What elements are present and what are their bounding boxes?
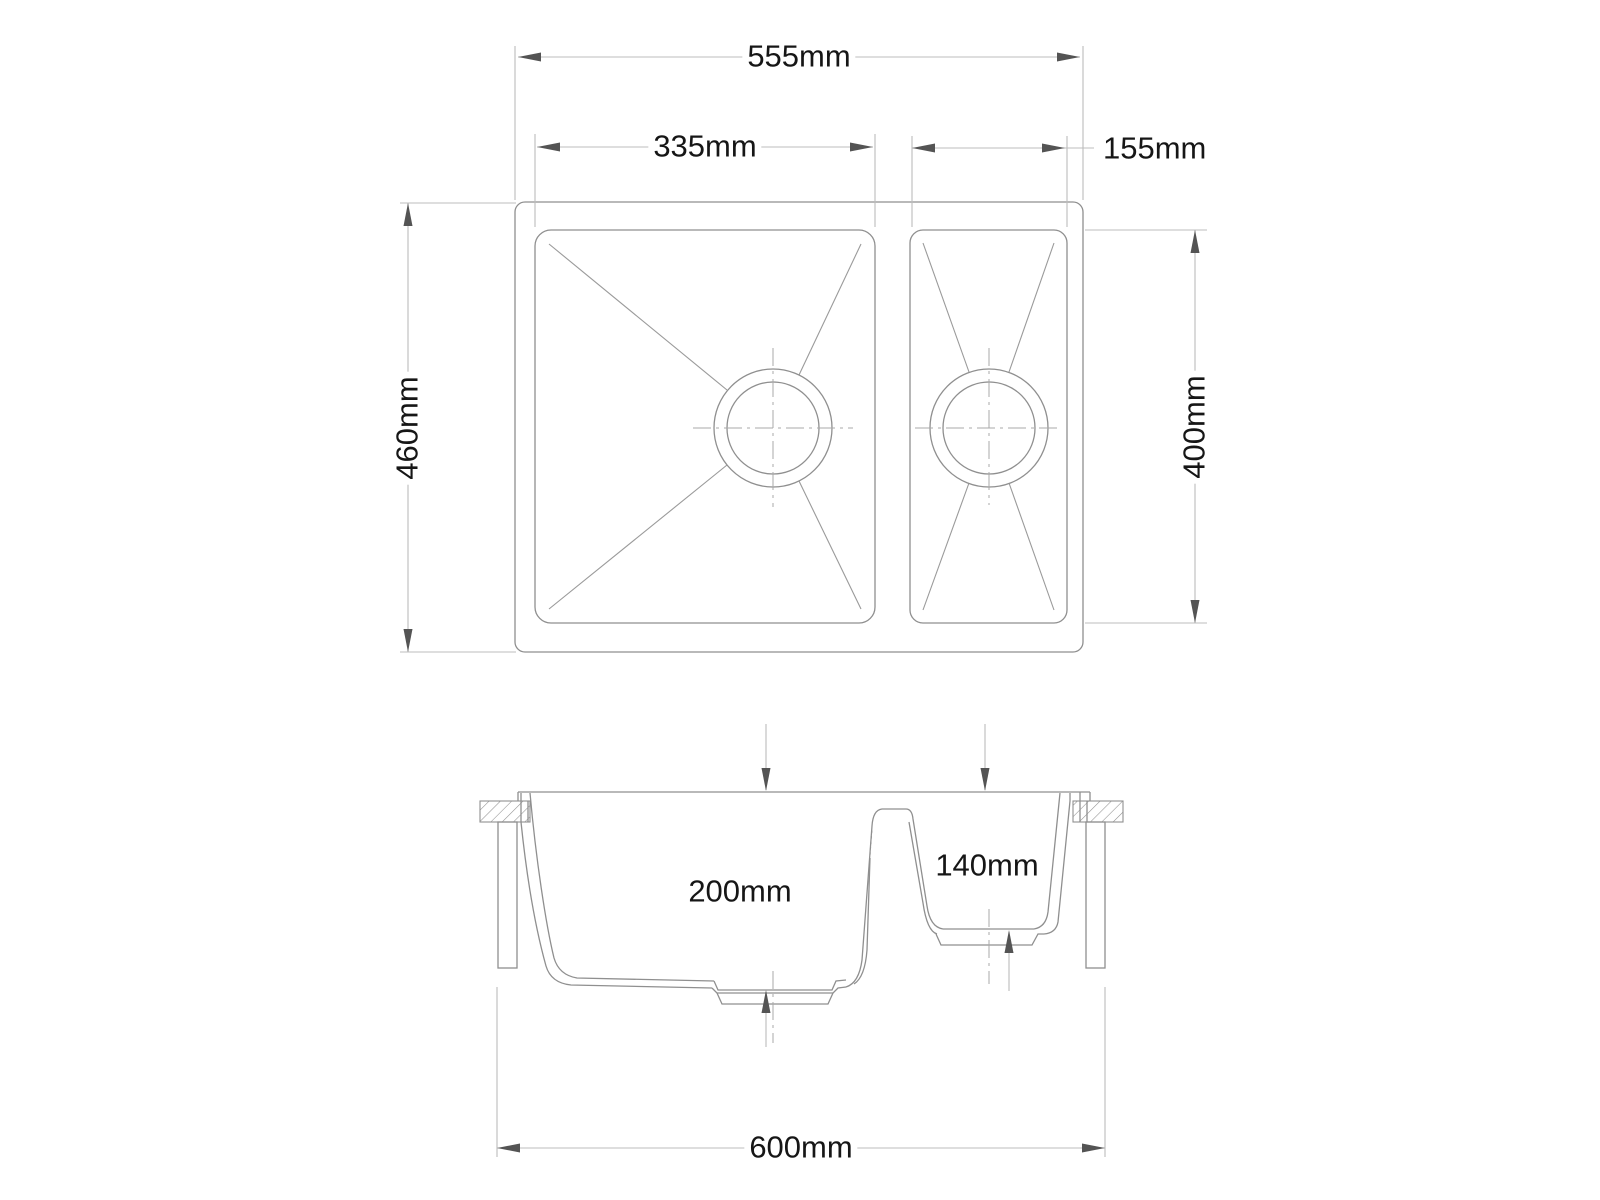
main-bowl-outline [535, 230, 875, 623]
bowl-divider-section [846, 809, 943, 987]
dim-bowl-front-to-back-label: 400mm [1179, 370, 1212, 483]
sink-rim-outline [515, 202, 1083, 652]
small-bowl-drain [915, 348, 1062, 505]
dim-overall-width-label: 555mm [742, 41, 855, 74]
top-view [400, 46, 1207, 652]
cabinet-panel-right [1086, 822, 1105, 968]
technical-drawing-canvas: 555mm 335mm 155mm 460mm 400mm 200mm 140m… [0, 0, 1600, 1200]
section-view [480, 724, 1123, 1157]
dim-small-bowl-depth-label: 140mm [930, 850, 1043, 883]
dim-cabinet-width-label: 600mm [744, 1132, 857, 1165]
cabinet-panel-left [498, 822, 517, 968]
dim-overall-depth-label: 460mm [392, 371, 425, 484]
dim-main-bowl-width-label: 335mm [648, 131, 761, 164]
dim-small-bowl-width-label: 155mm [1098, 133, 1211, 166]
sink-technical-drawing [0, 0, 1600, 1200]
main-bowl-drain [693, 348, 853, 507]
countertop-hatch-left [480, 801, 530, 822]
dim-main-bowl-depth-label: 200mm [683, 876, 796, 909]
dim-small-bowl-width-lines [912, 136, 1094, 227]
main-bowl-slope-lines [549, 244, 861, 609]
